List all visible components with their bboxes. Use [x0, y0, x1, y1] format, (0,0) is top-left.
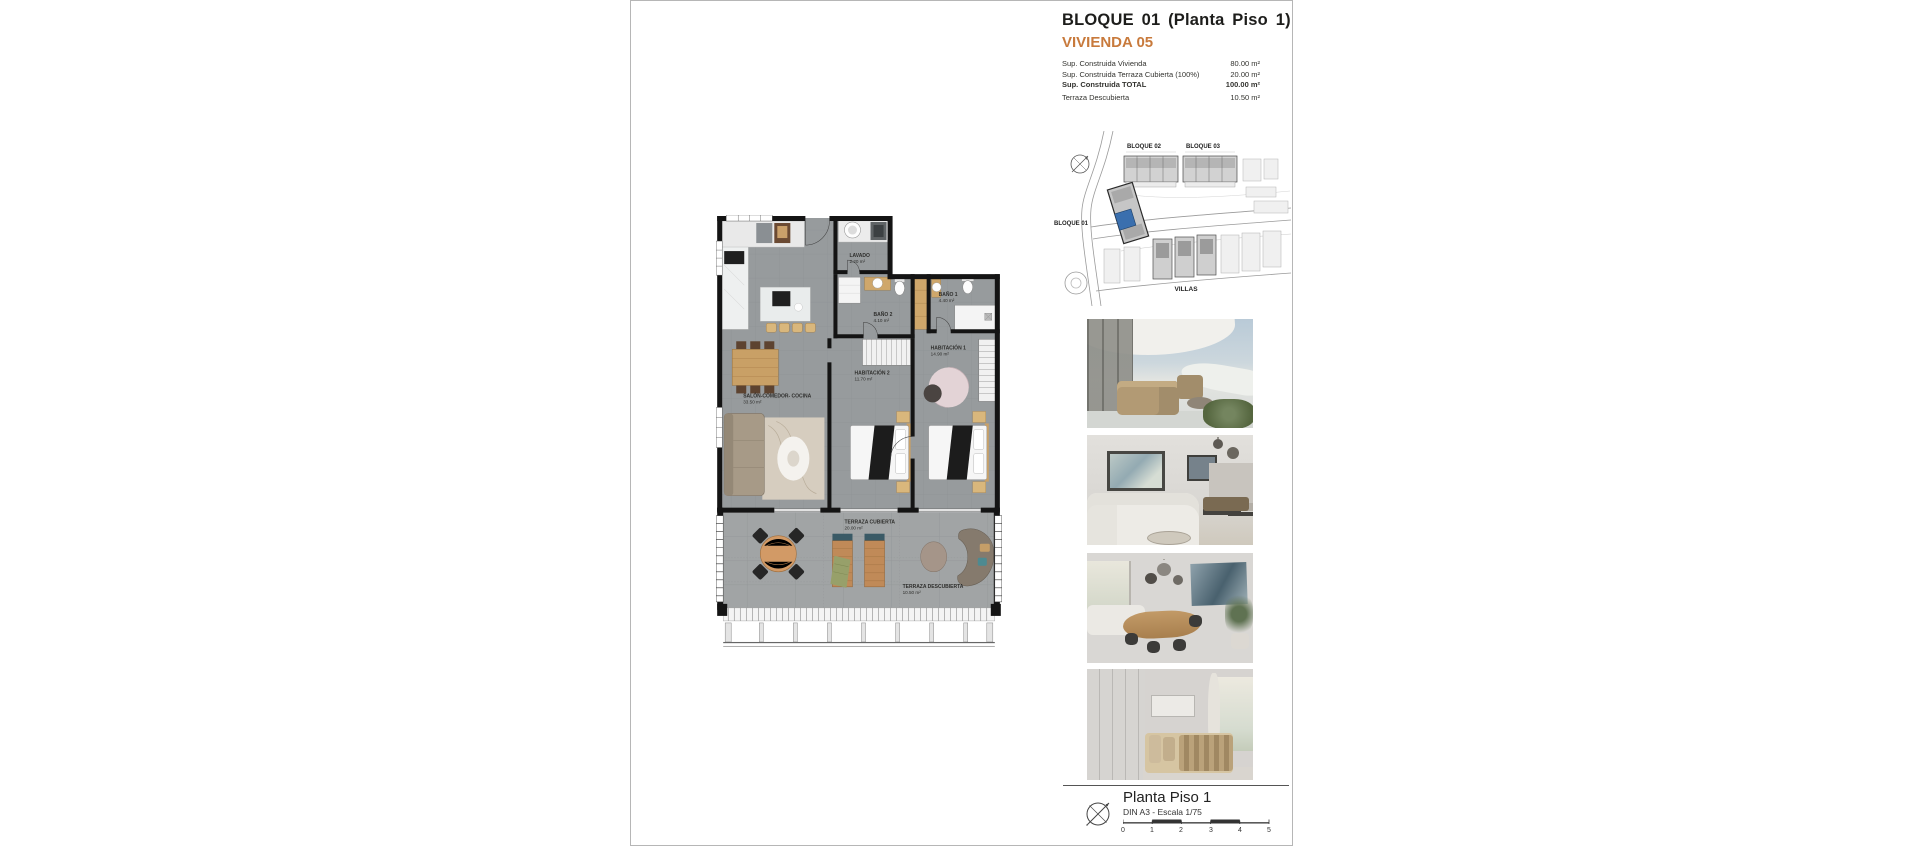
- area-value: 10.50 m²: [1230, 93, 1260, 104]
- scale-number: 3: [1209, 827, 1213, 834]
- wicker-sofa: [1117, 381, 1179, 415]
- striped-blanket: [1179, 735, 1233, 771]
- pillow: [1149, 735, 1161, 763]
- room-label-bano1: BAÑO 1: [939, 291, 958, 298]
- site-bloque02-building: [1124, 152, 1178, 187]
- plan-sheet: BLOQUE 01 (Planta Piso 1) VIVIENDA 05 Su…: [630, 0, 1293, 846]
- site-compass-icon: [1071, 155, 1089, 173]
- area-row: Sup. Construida Terraza Cubierta (100%) …: [1062, 70, 1260, 81]
- pendant-lamp: [1173, 575, 1183, 585]
- area-value: 100.00 m²: [1226, 80, 1260, 91]
- laundry-fixtures: [838, 220, 888, 242]
- wicker-chair: [1177, 375, 1203, 399]
- area-label: Terraza Descubierta: [1062, 93, 1129, 104]
- wardrobe: [1087, 669, 1145, 780]
- site-neighbor-buildings: [1243, 159, 1288, 213]
- area-value: 20.00 m²: [1230, 70, 1260, 81]
- site-label-bloque01: BLOQUE 01: [1054, 221, 1089, 227]
- room-area-bano1: 4.40 m²: [939, 298, 955, 303]
- chair: [1147, 641, 1160, 653]
- area-row: Terraza Descubierta 10.50 m²: [1062, 93, 1260, 104]
- room-area-bano2: 4.10 m²: [874, 318, 890, 323]
- area-row: Sup. Construida Vivienda 80.00 m²: [1062, 59, 1260, 70]
- room-area-terraza-cubierta: 20.00 m²: [844, 526, 863, 531]
- greenery: [1203, 399, 1253, 428]
- headboard-art: [1151, 695, 1195, 717]
- site-bloque03-building: [1183, 152, 1237, 187]
- area-label: Sup. Construida Terraza Cubierta (100%): [1062, 70, 1199, 81]
- pillow: [1163, 737, 1175, 761]
- room-area-salon: 33.50 m²: [743, 399, 762, 404]
- scale-number: 0: [1121, 827, 1125, 834]
- site-label-villas: VILLAS: [1174, 286, 1198, 293]
- plant-pot: [1231, 633, 1249, 649]
- scale-number: 1: [1150, 827, 1154, 834]
- area-value: 80.00 m²: [1230, 59, 1260, 70]
- terrace-railing: [717, 604, 1001, 647]
- photo-living-room-render: [1087, 435, 1253, 545]
- room-label-habitacion2: HABITACIÓN 2: [854, 368, 889, 376]
- photo-terrace-render: [1087, 319, 1253, 428]
- pendant-lamp: [1227, 447, 1239, 459]
- living-furniture: [724, 413, 824, 499]
- scale-bar: [1123, 818, 1271, 826]
- page-title: BLOQUE 01 (Planta Piso 1): [1062, 11, 1291, 30]
- chair: [1189, 615, 1202, 627]
- photo-bedroom-render: [1087, 669, 1253, 780]
- area-label: Sup. Construida TOTAL: [1062, 80, 1146, 91]
- pendant-lamp: [1157, 563, 1171, 576]
- site-bloque01-building: [1107, 182, 1148, 243]
- screenshot-root: { "header": { "title": "BLOQUE 01 (Plant…: [0, 0, 1920, 850]
- wall-art: [1107, 451, 1165, 491]
- scale-number: 2: [1179, 827, 1183, 834]
- site-label-bloque03: BLOQUE 03: [1186, 144, 1221, 150]
- chair: [1125, 633, 1138, 645]
- legend-scale-note: DIN A3 - Escala 1/75: [1123, 807, 1202, 817]
- room-area-lavado: 2.20 m²: [849, 259, 865, 264]
- area-table: Sup. Construida Vivienda 80.00 m² Sup. C…: [1062, 59, 1260, 103]
- unit-title: VIVIENDA 05: [1062, 34, 1153, 51]
- dining-set: [1203, 497, 1249, 511]
- scale-number: 4: [1238, 827, 1242, 834]
- legend-title: Planta Piso 1: [1123, 789, 1211, 806]
- site-label-bloque02: BLOQUE 02: [1127, 144, 1162, 150]
- chair: [1173, 639, 1186, 651]
- area-label: Sup. Construida Vivienda: [1062, 59, 1147, 70]
- legend-divider: [1063, 785, 1289, 786]
- pendant-lamp: [1213, 439, 1223, 449]
- scale-number: 5: [1267, 827, 1271, 834]
- floor-plan: LAVADO 2.20 m² BAÑO 2 4.10 m² BAÑO 1 4.4…: [716, 215, 1002, 657]
- room-area-habitacion1: 14.90 m²: [931, 351, 950, 356]
- site-plan: BLOQUE 02 BLOQUE 03 BLOQUE 01 VILLAS: [1046, 131, 1291, 306]
- photo-dining-room-render: [1087, 553, 1253, 663]
- area-row-total: Sup. Construida TOTAL 100.00 m²: [1062, 80, 1260, 91]
- pendant-lamp: [1145, 573, 1157, 584]
- room-label-salon: SALÓN-COMEDOR- COCINA: [743, 391, 811, 399]
- room-area-terraza-descubierta: 10.50 m²: [903, 590, 922, 595]
- plant: [1225, 593, 1253, 635]
- sliding-doors: [774, 509, 980, 512]
- north-compass-icon: [1081, 797, 1115, 831]
- room-area-habitacion2: 11.70 m²: [854, 376, 872, 381]
- dining-furniture: [732, 341, 778, 393]
- coffee-table: [1147, 531, 1191, 545]
- room-label-bano2: BAÑO 2: [874, 311, 893, 318]
- room-label-habitacion1: HABITACIÓN 1: [931, 343, 966, 351]
